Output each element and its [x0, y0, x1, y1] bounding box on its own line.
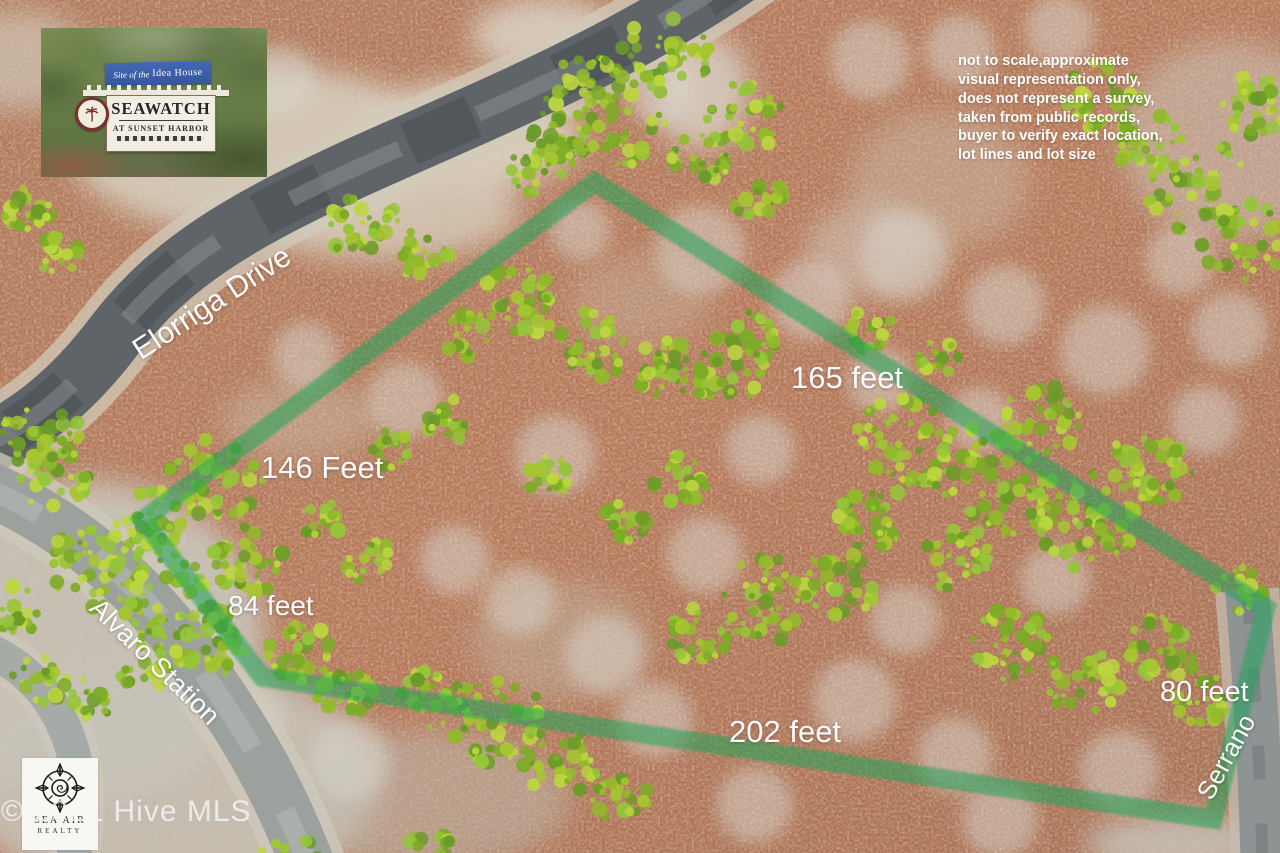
idea-house-banner: Site of the Idea House: [105, 61, 212, 87]
lot-dimension-northeast: 165 feet: [791, 360, 903, 396]
disclaimer-text: not to scale,approximate visual represen…: [958, 52, 1172, 165]
lot-dimension-east: 80 feet: [1160, 676, 1249, 709]
community-sign-photo: Site of the Idea House SEAWATCH AT SUNSE…: [41, 28, 267, 177]
lot-dimension-west: 84 feet: [228, 590, 314, 622]
lot-dimension-northwest: 146 Feet: [261, 450, 383, 486]
aerial-lot-photo: Site of the Idea House SEAWATCH AT SUNSE…: [0, 0, 1280, 853]
sign-divider: [119, 120, 203, 121]
sign-dentil-trim: [117, 136, 205, 141]
seawatch-signboard: SEAWATCH AT SUNSET HARBOR: [107, 96, 215, 151]
mls-watermark: © 2021 Hive MLS: [1, 795, 252, 829]
banner-prefix: Site of the: [113, 69, 149, 80]
sign-subtitle: AT SUNSET HARBOR: [113, 124, 209, 133]
palm-tree-emblem-icon: [75, 97, 109, 131]
banner-name: Idea House: [152, 67, 203, 79]
sign-title: SEAWATCH: [111, 101, 210, 118]
lot-dimension-south: 202 feet: [729, 714, 841, 750]
